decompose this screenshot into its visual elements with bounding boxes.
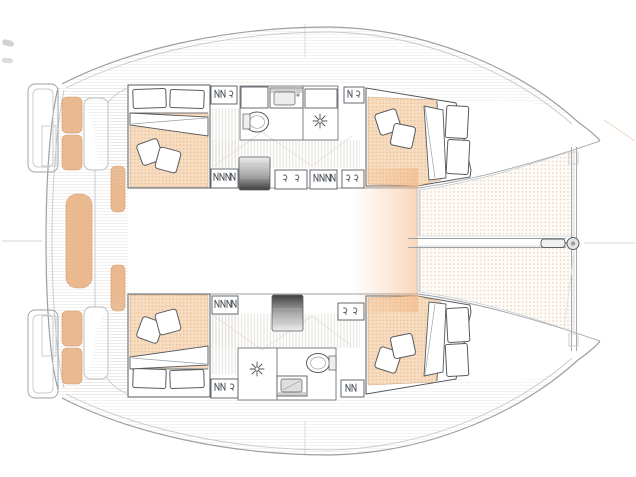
cleat-marks — [1, 39, 14, 64]
counter — [305, 89, 337, 108]
catamaran-floorplan — [0, 0, 636, 477]
shower — [313, 114, 327, 128]
toilet — [243, 112, 269, 132]
bowsprit-fitting — [541, 238, 579, 250]
port-aft-cabin — [128, 85, 210, 188]
starboard-aft-cabin — [128, 294, 210, 397]
port-hull — [62, 27, 600, 190]
bowsprit-icon — [541, 239, 565, 248]
sink — [270, 88, 303, 108]
starboard-hull — [62, 293, 600, 455]
bench-cushion — [62, 311, 82, 346]
bridle-line — [604, 120, 635, 141]
starboard-companionway-steps — [272, 295, 303, 331]
cabinet — [241, 87, 268, 108]
bench-cushion — [62, 135, 82, 170]
aft-bench-cushion — [66, 194, 92, 288]
bench-cushion — [62, 348, 82, 384]
floorplan-stage — [0, 0, 636, 477]
port-companionway-steps — [239, 157, 270, 190]
shower — [250, 362, 264, 376]
toilet — [307, 354, 337, 373]
render-glow — [352, 168, 418, 312]
bench-cushion — [62, 97, 82, 133]
port-corridor-floor — [212, 140, 360, 168]
sink — [277, 376, 307, 396]
